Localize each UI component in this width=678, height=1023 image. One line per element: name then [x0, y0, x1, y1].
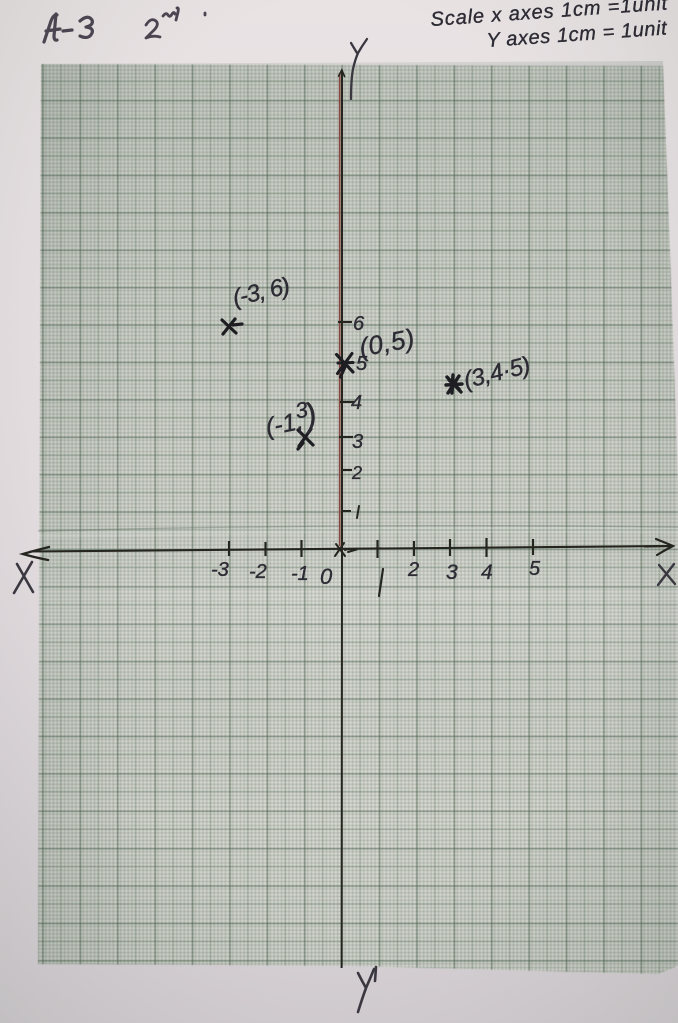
svg-text:-3: -3 — [211, 559, 229, 581]
svg-text:-1: -1 — [291, 563, 309, 585]
svg-text:3: 3 — [446, 561, 458, 584]
svg-text:-2: -2 — [249, 561, 267, 583]
svg-text:4: 4 — [351, 392, 362, 414]
svg-text:2: 2 — [351, 463, 362, 483]
svg-text:2: 2 — [407, 559, 419, 581]
svg-text:4: 4 — [481, 561, 493, 584]
svg-text:5: 5 — [529, 558, 541, 580]
svg-text:0: 0 — [320, 564, 333, 589]
svg-text:3: 3 — [352, 431, 363, 453]
